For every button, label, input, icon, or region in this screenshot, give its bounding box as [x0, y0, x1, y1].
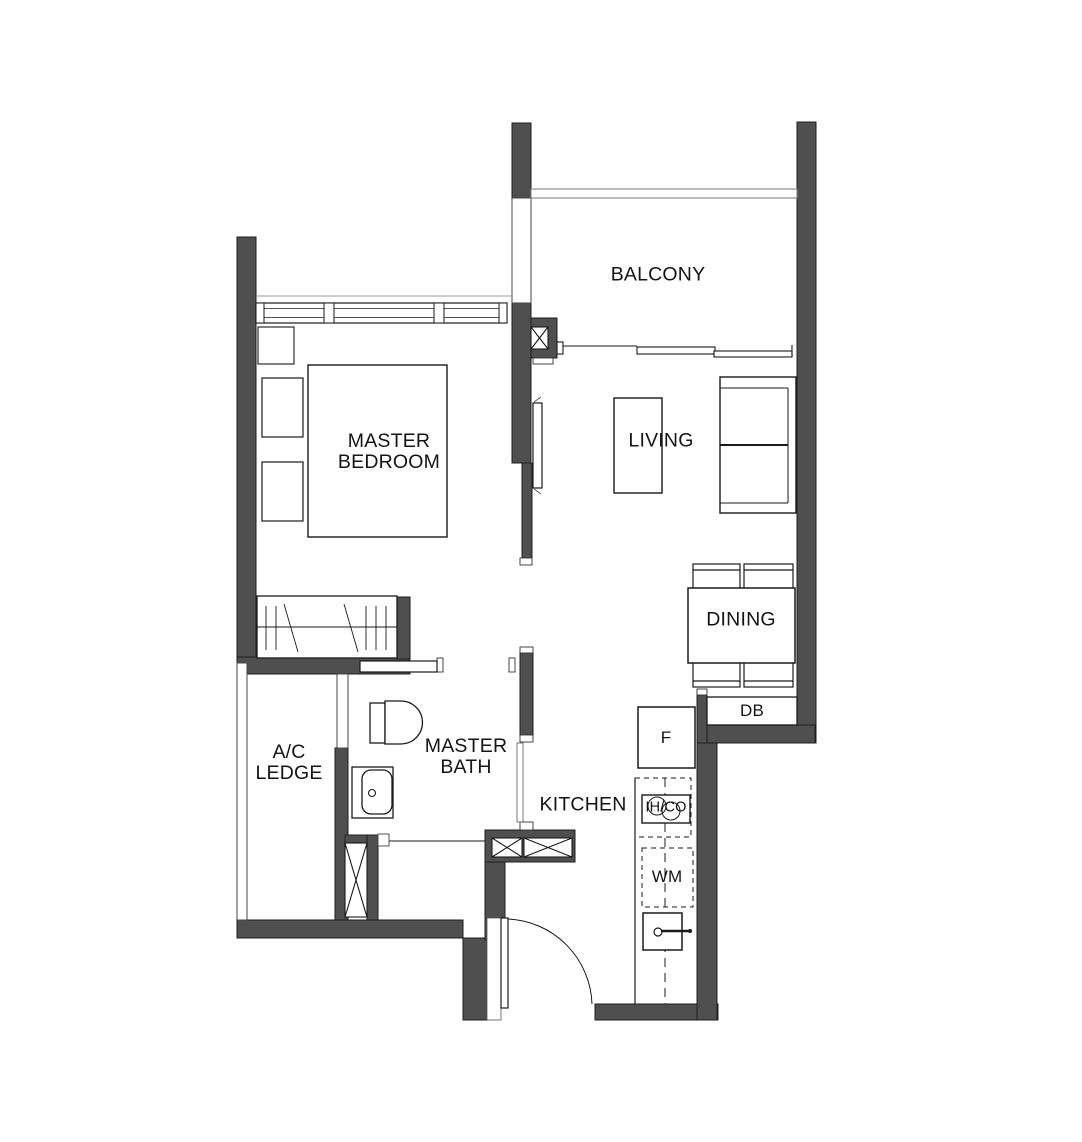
thin-wall-ac-left	[237, 663, 247, 920]
bedroom-door-panel	[533, 403, 542, 488]
wall-db-bottom	[707, 725, 815, 743]
bedside-table	[262, 462, 303, 521]
faucet-base	[654, 928, 662, 936]
window-mullion	[324, 303, 334, 323]
wall-shaft-right	[367, 835, 378, 920]
wall-living-northwest	[512, 303, 531, 463]
panel-tick	[534, 397, 541, 402]
bedroom-window	[256, 296, 512, 323]
room-label-living: LIVING	[628, 431, 693, 452]
cap-arm-bottom	[533, 358, 553, 364]
room-label-master-bedroom-line2: BEDROOM	[338, 452, 440, 473]
wall-bedroom-east-narrow	[522, 463, 532, 558]
cap-kitchen-column	[697, 689, 707, 695]
wall-entry-step	[463, 938, 488, 1020]
entrance-door	[487, 918, 592, 1020]
label-fridge: F	[661, 729, 672, 747]
thin-wall-bath-left	[337, 674, 348, 748]
room-label-master-bath: MASTER BATH	[425, 736, 507, 778]
label-db: DB	[740, 702, 764, 720]
floor-plan-drawing	[0, 0, 1082, 1142]
balcony-sliding-door	[557, 342, 792, 357]
floor-trap	[378, 834, 389, 846]
balcony-parapet	[531, 189, 797, 198]
window-mullion	[434, 303, 444, 323]
slider-panel-1	[637, 347, 715, 354]
slider-panel-2	[714, 351, 792, 357]
window-post	[256, 303, 264, 323]
wall-ac-ledge-bottom	[237, 920, 463, 938]
bedroom-sliding-door	[533, 397, 542, 494]
wardrobe	[257, 596, 397, 658]
room-label-ac-ledge-line1: A/C	[255, 742, 322, 763]
toilet-bowl	[385, 701, 423, 744]
cap-bath-east-top	[520, 647, 533, 653]
wash-basin	[362, 770, 392, 814]
room-label-master-bath-line2: BATH	[425, 757, 507, 778]
duct-marker-shaft	[345, 843, 367, 917]
basin-drain	[369, 790, 376, 797]
cap-bedroom-east	[520, 558, 532, 565]
duct-marker-corner-2	[524, 838, 572, 857]
wall-wardrobe-stub	[397, 597, 410, 659]
wall-kitchen-column	[697, 695, 707, 743]
door-jamb	[487, 918, 501, 1020]
duct-marker-corner-1	[492, 838, 522, 857]
wall-bath-east	[520, 653, 533, 735]
door-swing	[508, 919, 592, 1004]
cap-bath-east-bottom	[520, 822, 533, 830]
room-label-dining: DINING	[706, 610, 775, 631]
room-label-kitchen: KITCHEN	[540, 795, 627, 816]
door-leaf	[501, 918, 508, 1008]
wall-kitchen-right	[697, 743, 717, 1020]
bath-sliding-door-east	[517, 743, 523, 822]
wall-right	[797, 122, 816, 743]
room-label-master-bath-line1: MASTER	[425, 736, 507, 757]
slider-frame-left	[557, 342, 563, 354]
label-hob: IH/CO	[645, 801, 686, 816]
wall-balcony-left-upper	[512, 123, 531, 198]
label-washing-machine: WM	[652, 868, 683, 886]
wall-bedroom-left	[237, 237, 256, 663]
window-frame	[256, 303, 507, 323]
cap-bath-door-right	[509, 658, 515, 672]
faucet-tip	[688, 929, 692, 933]
wall-shaft-top	[345, 835, 367, 843]
cap-bath-east-mid	[520, 735, 533, 742]
room-label-ac-ledge-line2: LEDGE	[255, 763, 322, 784]
room-label-ac-ledge: A/C LEDGE	[255, 742, 322, 784]
room-label-master-bedroom: MASTER BEDROOM	[338, 431, 440, 473]
panel-tick	[534, 489, 541, 494]
room-label-master-bedroom-line1: MASTER	[338, 431, 440, 452]
corner-cabinet	[258, 327, 294, 364]
thin-wall-balcony-left	[512, 198, 531, 303]
room-label-balcony: BALCONY	[611, 265, 706, 286]
cap-bath-door-left	[437, 658, 443, 672]
sofa	[720, 377, 796, 513]
bedside-table	[262, 378, 303, 437]
floor-plan: BALCONY LIVING MASTER BEDROOM DINING A/C…	[0, 0, 1082, 1142]
toilet-tank	[370, 703, 385, 743]
kitchen-counter	[635, 707, 695, 1004]
duct-marker-living-corner	[531, 327, 548, 349]
bath-sliding-door-top	[360, 661, 437, 672]
window-post	[499, 303, 507, 323]
